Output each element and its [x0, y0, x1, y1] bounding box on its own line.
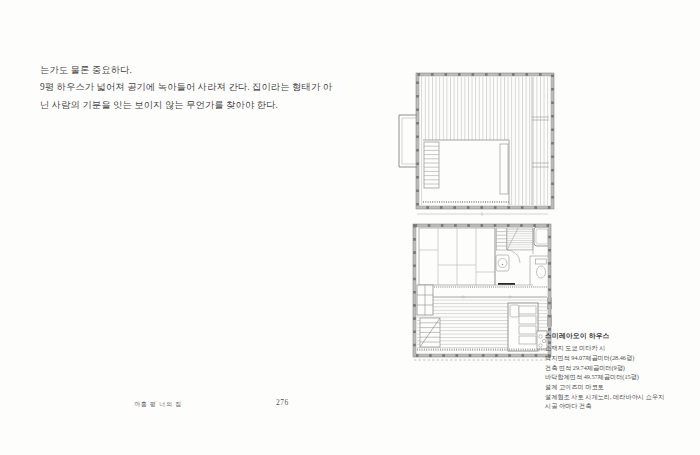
caption-line: 설계협조 사토 시게노리, 데라바야시 쇼우지	[545, 392, 675, 402]
tatami-room	[419, 228, 495, 285]
plan-caption: 스미레아오이 하우스 소재지 도쿄 미타카 시 택지면적 94.07제곱미터(2…	[545, 331, 675, 411]
book-page: 는가도 물론 중요하다. 9평 하우스가 넓어져 공기에 녹아들어 사라져 간다…	[0, 0, 700, 455]
paragraph-line: 9평 하우스가 넓어져 공기에 녹아들어 사라져 간다. 집이라는 형태가 아	[40, 79, 296, 96]
caption-line: 설계 고이즈미 마코토	[545, 382, 675, 392]
staircase-1f	[420, 318, 440, 347]
paragraph-line: 는가도 물론 중요하다.	[40, 62, 296, 79]
caption-line: 건축 면적 29.74제곱미터(9평)	[545, 363, 675, 373]
page-number: 276	[276, 398, 289, 407]
second-floor-plan	[396, 66, 558, 218]
balcony	[399, 115, 417, 167]
caption-line: 시공 야마다 건축	[545, 401, 675, 411]
void-counter	[500, 144, 508, 194]
toilet	[530, 256, 550, 285]
first-floor-plan	[396, 218, 558, 362]
body-paragraph: 는가도 물론 중요하다. 9평 하우스가 넓어져 공기에 녹아들어 사라져 간다…	[40, 62, 296, 114]
caption-title: 스미레아오이 하우스	[545, 331, 675, 341]
caption-line: 택지면적 94.07제곱미터(28.46평)	[545, 353, 675, 363]
running-head-book-title: 아홉 평 너의 집	[108, 400, 208, 409]
caption-line: 바닥합계면적 49.57제곱미터(15평)	[545, 372, 675, 382]
paragraph-line: 닌 사람의 기분을 잇는 보이지 않는 무언가를 찾아야 한다.	[40, 97, 296, 114]
threshold-bar	[498, 283, 515, 285]
kitchen-island	[508, 303, 538, 351]
eaves-line	[417, 212, 548, 216]
storage-shelf	[417, 285, 433, 315]
bathroom	[495, 228, 533, 285]
staircase-2f	[424, 142, 439, 188]
bathtub	[533, 227, 550, 254]
caption-line: 소재지 도쿄 미타카 시	[545, 343, 675, 353]
